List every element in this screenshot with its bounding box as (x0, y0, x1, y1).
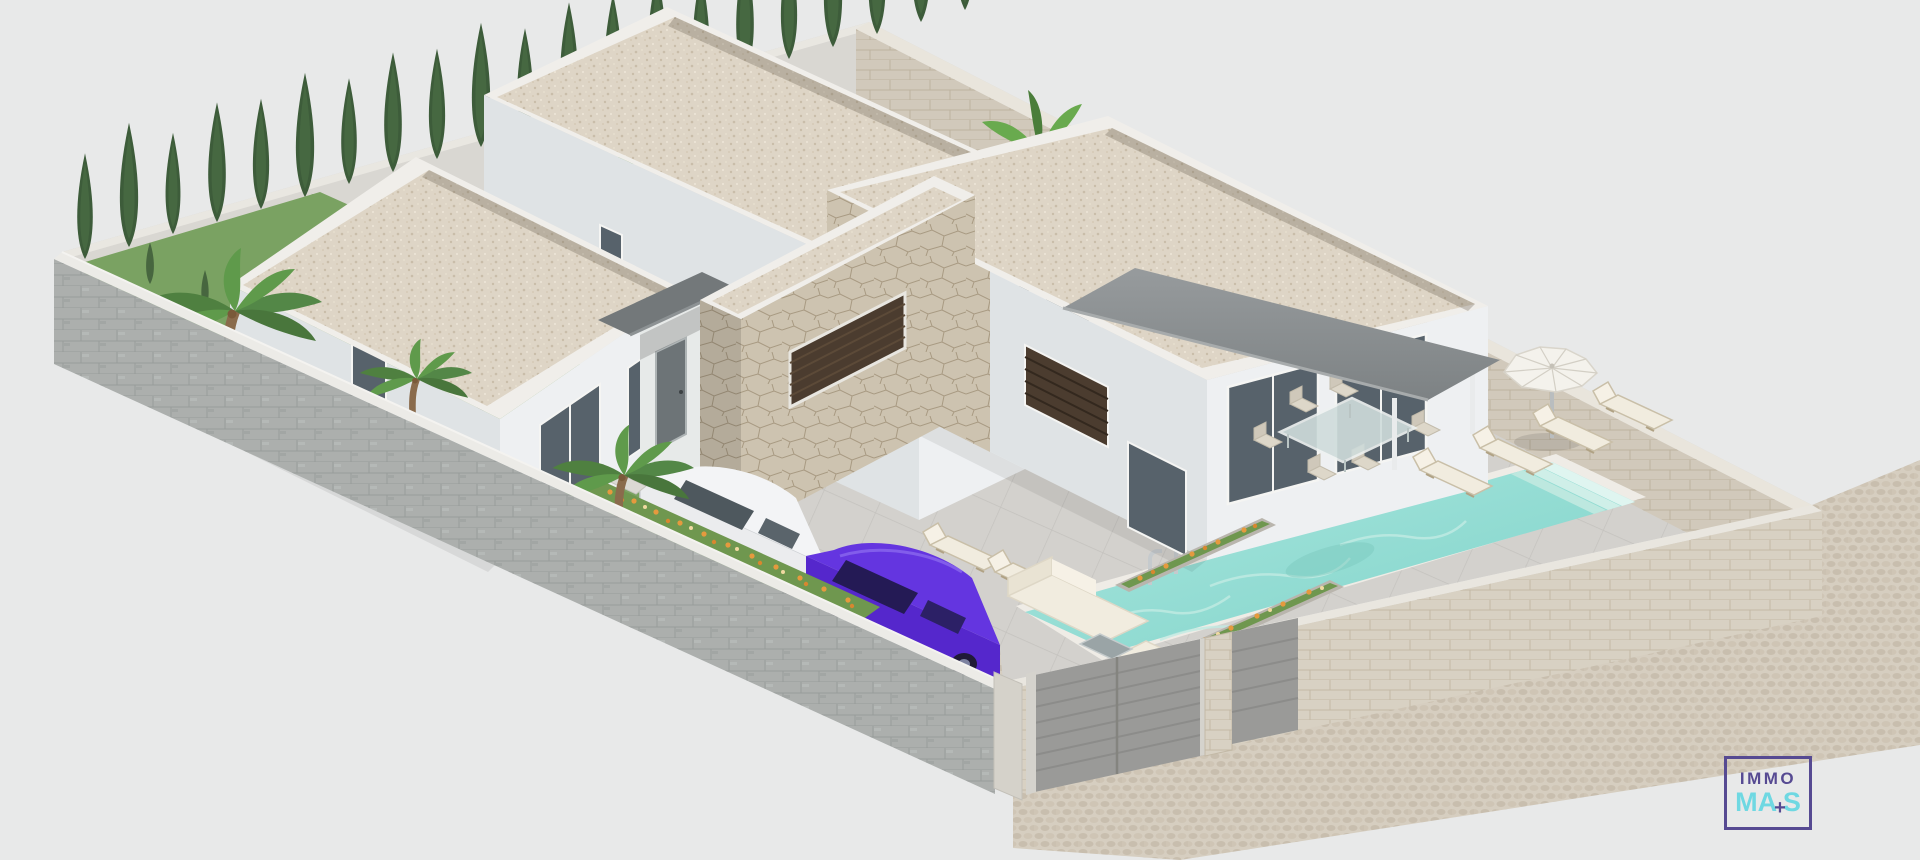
logo-ma: MA (1735, 789, 1777, 816)
villa-scene (0, 0, 1920, 860)
archviz-render: IMMO MA + S (0, 0, 1920, 860)
entrance-door (656, 338, 686, 450)
pedestrian-gate[interactable] (1232, 618, 1298, 744)
logo-plus-icon: + (1774, 798, 1786, 818)
logo-line-immo: IMMO (1740, 770, 1796, 787)
immo-mas-logo: IMMO MA + S (1724, 756, 1812, 830)
logo-line-mas: MA + S (1735, 789, 1801, 816)
gate-pier (1205, 632, 1232, 756)
corner-pillar (994, 672, 1022, 800)
